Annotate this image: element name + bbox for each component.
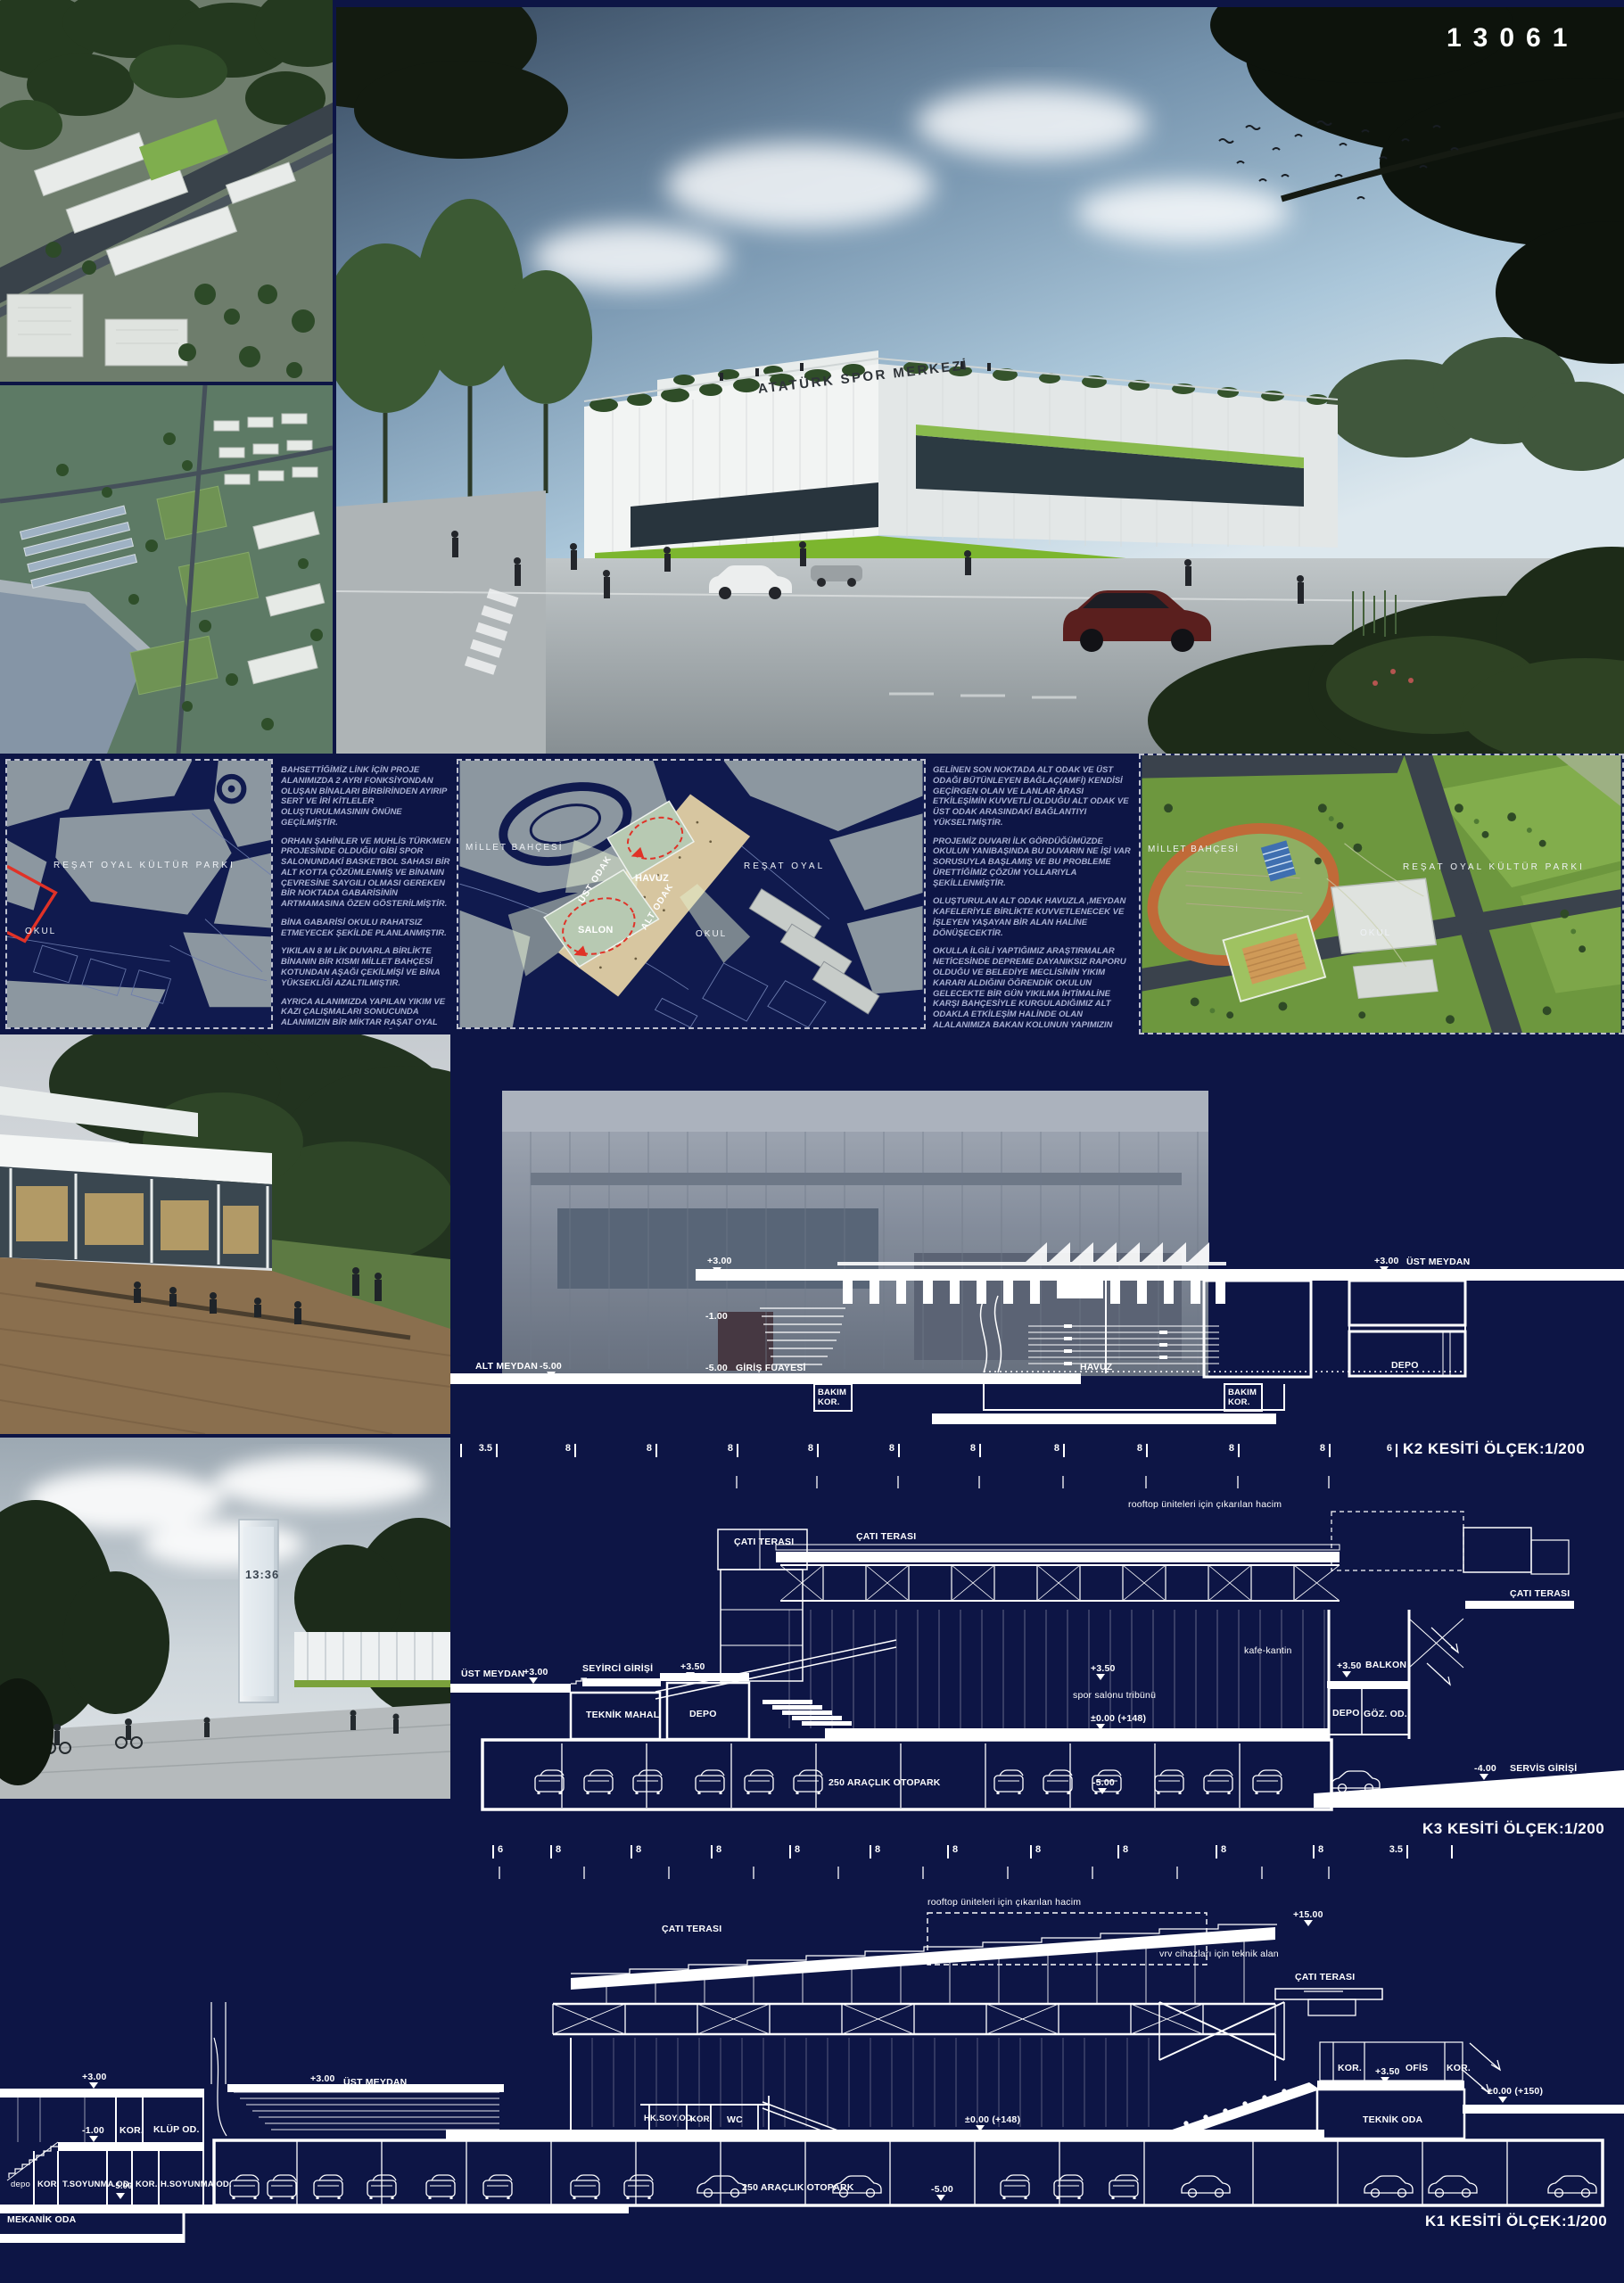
map-label-okul: OKUL <box>25 927 56 936</box>
dim-label: 8 <box>952 1844 958 1855</box>
paragraph: ORHAN ŞAHİNLER VE MUHLİS TÜRKMEN PROJESİ… <box>281 837 452 910</box>
level-label: +3.50 <box>1091 1663 1116 1674</box>
level-marker <box>1304 1920 1313 1931</box>
level-marker <box>547 1372 556 1382</box>
room-label-bakim-kor: BAKIM KOR. <box>818 1389 846 1408</box>
level-label: -5.00 <box>1092 1777 1115 1788</box>
dim-label: 8 <box>1302 1443 1325 1454</box>
dim-tick <box>550 1845 552 1859</box>
level-label: ±0.00 (+150) <box>1488 2086 1543 2097</box>
section-title-k3: K3 KESİTİ ÖLÇEK:1/200 <box>1422 1820 1604 1838</box>
level-label: -5.00 <box>931 2184 953 2195</box>
map-label-okul: OKUL <box>1360 928 1391 938</box>
room-label-kor: KOR. <box>37 2180 60 2190</box>
room-label-spor-salonu: spor salonu tribünü <box>1073 1690 1156 1701</box>
paragraph: AYRICA ALANIMIZDA YAPILAN YIKIM VE KAZI … <box>281 997 452 1029</box>
dim-label: 8 <box>556 1844 561 1855</box>
level-marker <box>713 1267 721 1278</box>
room-label-teknik-mahal: TEKNİK MAHAL <box>586 1710 659 1720</box>
section-k2-drawing <box>450 1066 1624 1476</box>
aerial-render-top-art <box>0 0 333 382</box>
level-marker <box>89 2136 98 2147</box>
room-label-seyirci: SEYİRCİ GİRİŞİ <box>582 1663 653 1674</box>
hero-render: 13061 ATATÜRK SPOR MERKEZİ <box>336 7 1624 754</box>
room-label-kor: KOR. <box>1338 2063 1362 2073</box>
dim-tick <box>870 1845 871 1859</box>
room-label-depo: DEPO <box>1332 1708 1360 1718</box>
room-label-ofis: OFİS <box>1406 2063 1428 2073</box>
level-marker <box>1098 1788 1107 1799</box>
site-plan-green-render-art <box>1141 755 1622 1033</box>
level-marker <box>529 1677 538 1688</box>
dim-label: 6 <box>1369 1443 1392 1454</box>
dim-tick <box>711 1845 713 1859</box>
dim-tick <box>492 1845 494 1859</box>
section-k1: rooftop üniteleri için çıkarılan hacim +… <box>0 1859 1624 2283</box>
site-plan-axon-art <box>458 761 924 1027</box>
map-label-park: REŞAT OYAL KÜLTÜR PARKI <box>54 861 235 870</box>
project-text-left: BAHSETTİĞİMİZ LİNK İÇİN PROJE ALANIMIZDA… <box>281 765 452 1029</box>
dim-tick <box>1396 1444 1397 1457</box>
level-marker <box>711 1373 720 1384</box>
level-label: ±0.00 (+148) <box>1091 1713 1146 1724</box>
dim-tick <box>947 1845 949 1859</box>
level-label: -5.00 <box>540 1361 562 1372</box>
room-label-hksoy: HK.SOY.OD. <box>644 2114 695 2124</box>
dim-tick <box>1117 1845 1119 1859</box>
dim-label: 8 <box>548 1443 571 1454</box>
rooftop-note: rooftop üniteleri için çıkarılan hacim <box>927 1897 1081 1908</box>
level-marker <box>976 2125 985 2136</box>
level-marker <box>89 2082 98 2093</box>
room-label-kafe: kafe-kantin <box>1244 1645 1292 1656</box>
room-label-depo: depo <box>11 2180 30 2190</box>
dim-tick <box>1063 1444 1065 1457</box>
paragraph: YIKILAN 8 M LİK DUVARLA BİRLİKTE BİNANIN… <box>281 946 452 988</box>
dim-label: 8 <box>636 1844 641 1855</box>
aerial-render-top <box>0 0 333 382</box>
dim-label: 8 <box>1123 1844 1128 1855</box>
dim-tick <box>1146 1444 1148 1457</box>
map-label-havuz: HAVUZ <box>635 873 669 885</box>
exterior-render-canopy-art <box>0 1034 450 1434</box>
room-label-otopark: 250 ARAÇLIK OTOPARK <box>828 1777 941 1788</box>
room-label-hsoyunma: H.SOYUNMA OD. <box>161 2180 232 2190</box>
dim-label: 8 <box>1119 1443 1142 1454</box>
dim-tick <box>789 1845 791 1859</box>
level-label: +3.00 <box>310 2073 335 2084</box>
level-label: -4.00 <box>1474 1763 1496 1774</box>
dim-label: 8 <box>795 1844 800 1855</box>
dim-label: 8 <box>1318 1844 1323 1855</box>
room-label-wc: WC <box>727 2114 743 2125</box>
paragraph: OKULLA İLGİLİ YAPTIĞIMIZ ARAŞTIRMALAR NE… <box>933 946 1131 1029</box>
level-marker <box>1381 2077 1389 2088</box>
level-label: +3.50 <box>1337 1661 1362 1671</box>
room-label-kor: KOR. <box>120 2125 144 2136</box>
dim-label: 8 <box>716 1844 721 1855</box>
room-label-mekanik: MEKANİK ODA <box>7 2214 76 2225</box>
dim-label: 8 <box>952 1443 976 1454</box>
dim-label: 8 <box>790 1443 813 1454</box>
room-label-klup: KLÜP OD. <box>153 2124 200 2135</box>
level-marker <box>317 2084 326 2095</box>
dim-tick <box>460 1444 462 1457</box>
room-label-ust-meydan: ÜST MEYDAN <box>343 2077 407 2088</box>
dim-tick <box>1030 1845 1032 1859</box>
section-k3: ÇATI TERASI ÇATI TERASI rooftop üniteler… <box>450 1476 1624 1868</box>
level-label: -5.00 <box>112 2182 133 2192</box>
dim-label: 3.5 <box>1380 1844 1403 1855</box>
map-label-resat: REŞAT OYAL <box>744 861 825 871</box>
room-label-balkon: BALKON <box>1365 1660 1406 1670</box>
dim-tick <box>574 1444 576 1457</box>
hero-render-art <box>336 7 1624 754</box>
masterplan-render-left <box>0 385 333 754</box>
section-title-k2: K2 KESİTİ ÖLÇEK:1/200 <box>1403 1440 1585 1458</box>
dim-label: 8 <box>1035 1844 1041 1855</box>
level-marker <box>116 2193 125 2204</box>
map-label-millet: MİLLET BAHÇESİ <box>466 843 564 853</box>
level-marker <box>1342 1671 1351 1682</box>
level-label: +3.00 <box>82 2072 107 2082</box>
dim-tick <box>898 1444 900 1457</box>
room-label-servis: SERVİS GİRİŞİ <box>1510 1763 1577 1774</box>
rooftop-note: rooftop üniteleri için çıkarılan hacim <box>1128 1499 1282 1510</box>
room-label-otopark: 250 ARAÇLIK OTOPARK <box>742 2182 854 2193</box>
level-label: +15.00 <box>1293 1909 1323 1920</box>
dim-tick <box>1238 1444 1240 1457</box>
clock-display: 13:36 <box>245 1568 279 1581</box>
exterior-render-canopy <box>0 1034 450 1434</box>
level-marker <box>936 2195 945 2205</box>
site-plan-green-render: MİLLET BAHÇESİ REŞAT OYAL KÜLTÜR PARKI O… <box>1139 754 1624 1034</box>
section-title-k1: K1 KESİTİ ÖLÇEK:1/200 <box>1425 2213 1607 2230</box>
roof-terrace-label: ÇATI TERASI <box>662 1924 721 1934</box>
dim-tick <box>979 1444 981 1457</box>
dim-label: 8 <box>629 1443 652 1454</box>
dim-tick <box>655 1444 657 1457</box>
map-label-resat: REŞAT OYAL KÜLTÜR PARKI <box>1403 862 1585 872</box>
exterior-render-dusk-art <box>0 1438 450 1799</box>
section-k2: +3.00 -1.00 ALT MEYDAN -5.00 -5.00 GİRİŞ… <box>450 1066 1624 1476</box>
room-label-depo: DEPO <box>689 1709 717 1719</box>
level-marker <box>1380 1266 1389 1277</box>
dim-label: 8 <box>871 1443 894 1454</box>
dim-tick <box>1406 1845 1408 1859</box>
roof-terrace-label: ÇATI TERASI <box>734 1537 794 1547</box>
paragraph: BAHSETTİĞİMİZ LİNK İÇİN PROJE ALANIMIZDA… <box>281 765 452 828</box>
roof-terrace-label: ÇATI TERASI <box>856 1531 916 1542</box>
competition-board: 13061 ATATÜRK SPOR MERKEZİ REŞAT OYAL KÜ… <box>0 0 1624 2283</box>
level-marker <box>1096 1674 1105 1685</box>
dim-label: 8 <box>1211 1443 1234 1454</box>
map-label-salon: SALON <box>578 925 614 936</box>
roof-terrace-label: ÇATI TERASI <box>1295 1972 1355 1982</box>
paragraph: PROJEMİZ DUVARI İLK GÖRDÜĞÜMÜZDE OKULUN … <box>933 837 1131 889</box>
level-label: -1.00 <box>705 1311 728 1322</box>
level-label: ±0.00 (+148) <box>965 2114 1020 2125</box>
room-label-giris-fuayesi: GİRİŞ FUAYESİ <box>736 1363 806 1373</box>
level-label: +3.00 <box>1374 1256 1399 1266</box>
dim-tick <box>1451 1845 1453 1859</box>
room-label-ust-meydan: ÜST MEYDAN <box>1406 1257 1470 1267</box>
map-label-okul: OKUL <box>696 929 727 939</box>
room-label-ust-meydan: ÜST MEYDAN <box>461 1669 524 1679</box>
level-label: +3.00 <box>523 1667 548 1677</box>
room-label-goz-od: GÖZ. OD. <box>1364 1709 1407 1719</box>
level-label: -5.00 <box>705 1363 728 1373</box>
dim-tick <box>817 1444 819 1457</box>
site-plan-context-art <box>7 761 271 1027</box>
room-label-teknik-oda: TEKNİK ODA <box>1363 2114 1422 2125</box>
dim-label: 8 <box>710 1443 733 1454</box>
room-label-kor: KOR. <box>136 2180 158 2190</box>
room-label-kor: KOR. <box>690 2115 713 2125</box>
dim-tick <box>631 1845 632 1859</box>
level-marker <box>686 1672 695 1683</box>
paragraph: BİNA GABARİSİ OKULU RAHATSIZ ETMEYECEK Ş… <box>281 918 452 939</box>
level-label: -1.00 <box>82 2125 104 2136</box>
dim-tick <box>737 1444 738 1457</box>
dim-label: 3.5 <box>469 1443 492 1454</box>
roof-terrace-label: ÇATI TERASI <box>1510 1588 1570 1599</box>
dim-tick <box>1216 1845 1217 1859</box>
dim-label: 6 <box>498 1844 503 1855</box>
room-label-alt-meydan: ALT MEYDAN <box>475 1361 538 1372</box>
dim-tick <box>496 1444 498 1457</box>
level-marker <box>1498 2097 1507 2107</box>
dim-tick <box>1329 1444 1331 1457</box>
dim-tick <box>1313 1845 1315 1859</box>
room-label-depo: DEPO <box>1391 1360 1419 1371</box>
paragraph: GELİNEN SON NOKTADA ALT ODAK VE ÜST ODAĞ… <box>933 765 1131 828</box>
paragraph: OLUŞTURULAN ALT ODAK HAVUZLA ,MEYDAN KAF… <box>933 896 1131 938</box>
level-marker <box>1480 1774 1488 1784</box>
exterior-render-dusk: 13:36 <box>0 1438 450 1799</box>
project-text-right: GELİNEN SON NOKTADA ALT ODAK VE ÜST ODAĞ… <box>933 765 1131 1029</box>
vrv-note: vrv cihazları için teknik alan <box>1159 1949 1279 1959</box>
level-label: +3.50 <box>680 1661 705 1672</box>
dim-label: 8 <box>1221 1844 1226 1855</box>
dim-label: 8 <box>1036 1443 1059 1454</box>
room-label-bakim-kor: BAKIM KOR. <box>1228 1389 1257 1408</box>
masterplan-render-left-art <box>0 385 333 754</box>
level-label: +3.50 <box>1375 2066 1400 2077</box>
room-label-kor: KOR. <box>1447 2063 1471 2073</box>
board-number: 13061 <box>1447 23 1579 54</box>
site-plan-context: REŞAT OYAL KÜLTÜR PARKI OKUL <box>5 759 273 1029</box>
dim-label: 8 <box>875 1844 880 1855</box>
map-label-millet: MİLLET BAHÇESİ <box>1148 845 1240 854</box>
level-label: +3.00 <box>707 1256 732 1266</box>
site-plan-axon: MİLLET BAHÇESİ REŞAT OYAL OKUL HAVUZ SAL… <box>457 759 926 1029</box>
room-label-havuz: HAVUZ <box>1080 1362 1112 1372</box>
level-marker <box>1096 1724 1105 1735</box>
